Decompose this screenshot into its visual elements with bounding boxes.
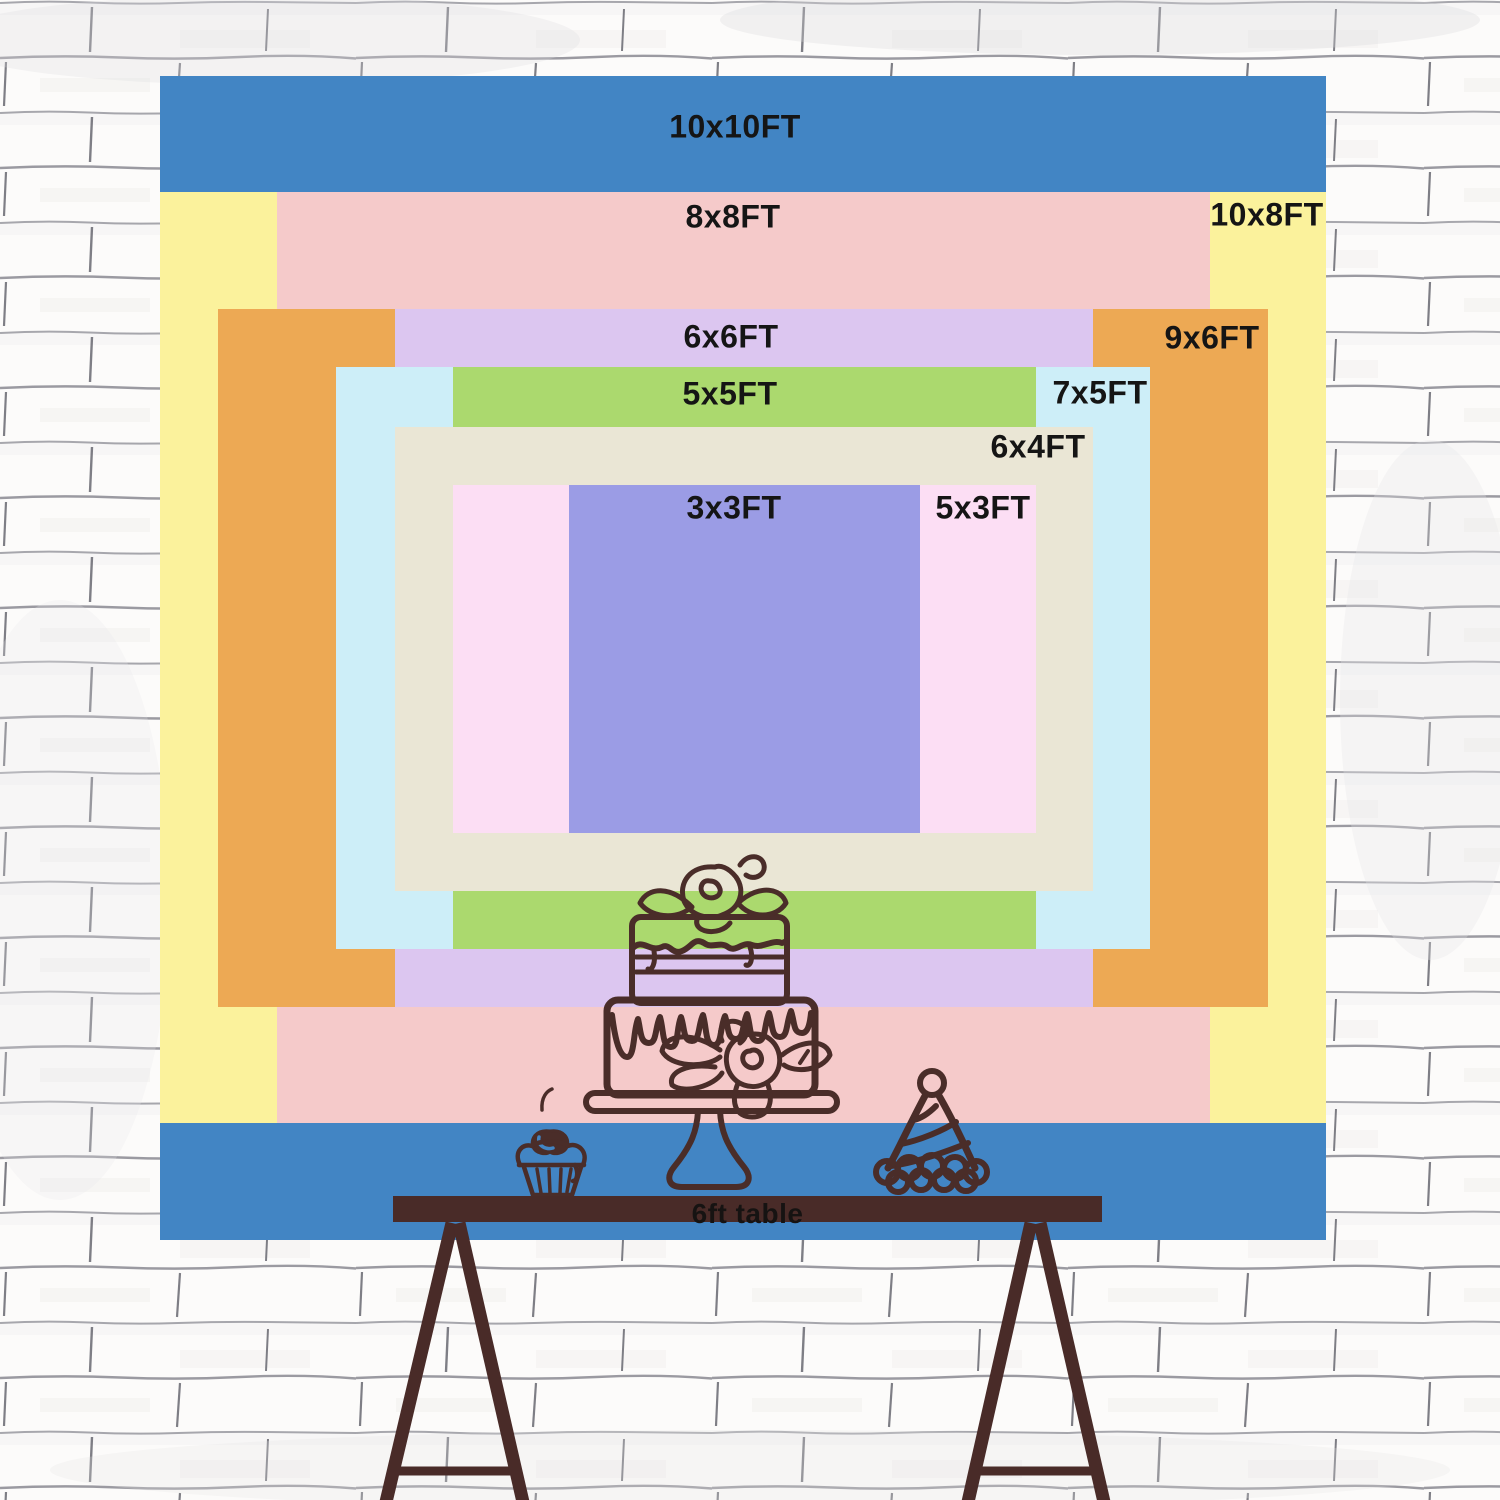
size-label-5x3: 5x3FT (936, 490, 1031, 527)
size-label-6x6: 6x6FT (684, 319, 779, 356)
backdrop-layer-3x3 (569, 485, 920, 833)
backdrop-size-chart: 10x10FT10x8FT8x8FT9x6FT6x6FT7x5FT5x5FT6x… (160, 76, 1326, 1240)
size-label-3x3: 3x3FT (687, 490, 782, 527)
size-label-10x10: 10x10FT (669, 109, 801, 146)
size-label-7x5: 7x5FT (1053, 375, 1148, 412)
table-top: 6ft table (393, 1196, 1102, 1222)
size-label-10x8: 10x8FT (1210, 197, 1323, 234)
size-label-6x4: 6x4FT (991, 429, 1086, 466)
size-label-5x5: 5x5FT (683, 376, 778, 413)
scene: 10x10FT10x8FT8x8FT9x6FT6x6FT7x5FT5x5FT6x… (0, 0, 1500, 1500)
size-label-8x8: 8x8FT (686, 199, 781, 236)
table-label: 6ft table (692, 1198, 804, 1230)
size-label-9x6: 9x6FT (1165, 320, 1260, 357)
